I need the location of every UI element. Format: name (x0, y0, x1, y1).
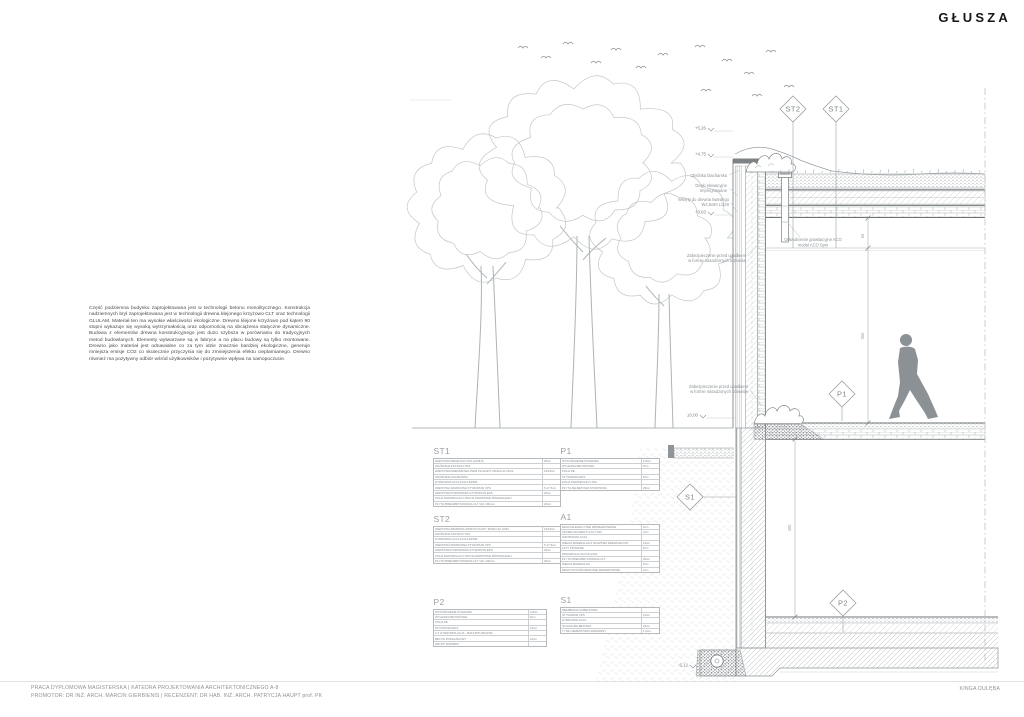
layer-value: 10cm (529, 626, 546, 630)
layer-name: WARSTWA SPADKOWA STYROPIAN XPS (434, 543, 543, 547)
layer-name: WARSTWA DRENAŻOWA ŻWIR PŁUKANY FRAKCJA 1… (434, 469, 543, 473)
spec-title-st2: ST2 (434, 514, 562, 524)
layer-name: WARSTWA POZIOMOWA STYROPIAN EPS (434, 548, 543, 552)
layer-name: STYROPIAN EPS (561, 475, 642, 479)
layer-name: FOLIA PE (434, 620, 529, 624)
layer-name: MEMBRANA KUBEŁKOWA (561, 608, 642, 612)
marker-st1-label: ST1 (829, 105, 844, 114)
layer-value: 2cm (642, 568, 659, 572)
layer-name: WŁÓKNINA FILTRACYJNA (434, 532, 543, 536)
layer-name: WEŁNA MINERALNA Z RUSZTEM DREWNIANYM (561, 541, 642, 545)
spec-table-s1: S1 MEMBRANA KUBEŁKOWASTYRODUR XPS10cmHYD… (560, 595, 660, 634)
layer-name: WYLEWKA BETONOWA (561, 464, 642, 468)
note-shrubs1-2: w formie nasadzonych krzewów (688, 258, 746, 263)
layer-name: WŁÓKNINA OCHRONNA (434, 475, 543, 479)
description-paragraph: Część podziemna budynku zaprojektowana j… (89, 306, 310, 363)
layer-name: FOLIA PE (561, 469, 642, 473)
note-drain-2: model ACO Spin (798, 243, 829, 248)
spec-title-p1: P1 (561, 446, 661, 456)
layer-name: WARSTWA POZIOMOWA STYROPIAN EPS (434, 491, 543, 495)
project-logo: GŁUSZA (938, 10, 1011, 25)
marker-st2-label: ST2 (786, 105, 801, 114)
birds-icons (518, 42, 794, 96)
spec-rows-a1: DESKI ELEWACYJNE IMPREGNOWANE2cmSZCZELIN… (560, 524, 660, 574)
layer-name: WARSTWA WEGETACYJNA HUMUS (434, 459, 543, 463)
layer-value: 5cm (642, 546, 659, 550)
note-flashing: Obróbka blacharska (690, 173, 727, 178)
layer-name: FOLIA PAROIZOLACYJNA (561, 480, 642, 484)
layer-name: PŁYTA ŻELBETOWA STROPOWA (561, 485, 642, 489)
spec-title-s1: S1 (561, 595, 661, 605)
layer-name: 2 X HYDROIZOLACJA - MATA BITUMICZNA (434, 631, 529, 635)
layer-value: 16cm (642, 541, 659, 545)
layer-name: TYNK CEMENTOWO-WAPIENNY (561, 629, 642, 633)
layer-name: WYKOŃCZENIE POSADZKI (434, 610, 529, 614)
spec-rows-s1: MEMBRANA KUBEŁKOWASTYRODUR XPS10cmHYDROI… (560, 607, 660, 635)
layer-name: DESKI ELEWACYJNE IMPREGNOWANE (561, 525, 642, 529)
layer-name: HYDROIZOLACJA FOLIA EPDM (434, 537, 543, 541)
layer-name: FOLIA PAROIZOLACYJNA NA WARSTWIE RÓWNAJĄ… (434, 553, 543, 557)
spec-table-st1: ST1 WARSTWA WEGETACYJNA HUMUS20cmWŁÓKNIN… (433, 446, 561, 507)
level-parapet: +4,75 (695, 152, 707, 157)
note-shrubs2-2: w formie nasadzonych krzewów (690, 389, 748, 394)
person-silhouette (889, 334, 938, 419)
layer-name: BETON PODKŁADOWY (434, 636, 529, 640)
layer-value: 1,5cm (642, 629, 659, 633)
table-row: GRUNT RODZIMY (434, 642, 546, 646)
spec-table-a1: A1 DESKI ELEWACYJNE IMPREGNOWANE2cmSZCZE… (560, 512, 660, 573)
dim-roof-gap: 60 (860, 233, 865, 238)
layer-name: DESKI WYKOŃCZENIOWE WEWNĘTRZNE (561, 568, 642, 572)
layer-value: 10/15cm (543, 527, 560, 531)
layer-name: PAROIZOLACJA FOLIA PE (561, 551, 642, 555)
spec-title-st1: ST1 (434, 446, 562, 456)
layer-name: HYDROIZOLACJA FOLIA EPDM (434, 480, 543, 484)
dim-storey: 350 (860, 332, 865, 340)
layer-value: 20cm (543, 459, 560, 463)
spec-table-st2: ST2 WARSTWA ŻWIROWA ŻWIR PŁUKANY FRAKCJA… (433, 514, 561, 564)
layer-value: 10cm (642, 613, 659, 617)
spec-table-p1: P1 WYKOŃCZENIE POSADZKI2,5cmWYLEWKA BETO… (560, 446, 660, 491)
layer-value: 5-17,5cm (543, 486, 560, 490)
spec-title-p2: P2 (434, 597, 548, 607)
layer-name: WIATROIZOLACJA (561, 535, 642, 539)
dim-basement: 400 (787, 524, 792, 532)
layer-value: 5cm (642, 562, 659, 566)
layer-value: 20cm (543, 559, 560, 563)
layer-name: ŚCIANA ŻELBETOWA (561, 624, 642, 628)
layer-value: 10cm (529, 637, 546, 641)
author-name: KINGA DULĘBA (960, 686, 1000, 692)
layer-name: PŁYTA PREFABRYKOWANA CLT GR. 200mm (434, 502, 543, 506)
layer-name: PŁYTA PREFABRYKOWANA CLT GR. 200mm (434, 559, 543, 563)
layer-value: 5cm (642, 475, 659, 479)
marker-p2-label: P2 (838, 599, 848, 608)
layer-value: 25cm (642, 624, 659, 628)
footer-credits: PRACA DYPLOMOWA MAGISTERSKA | KATEDRA PR… (31, 685, 322, 700)
marker-p2: P2 (830, 590, 856, 616)
layer-name: WYKOŃCZENIE POSADZKI (561, 459, 642, 463)
table-row: PŁYTA PREFABRYKOWANA CLT GR. 200mm20cm (434, 502, 560, 506)
table-row: DESKI WYKOŃCZENIOWE WEWNĘTRZNE2cm (561, 568, 659, 572)
layer-value: 20cm (543, 491, 560, 495)
layer-name: WEŁNA MINERALNA (561, 562, 642, 566)
table-row: TYNK CEMENTOWO-WAPIENNY1,5cm (561, 629, 659, 633)
layer-name: WŁÓKNINA FILTRACYJNA (434, 464, 543, 468)
level-ground: ±0,00 (687, 413, 699, 418)
marker-p1-label: P1 (837, 390, 847, 399)
layer-value: 5cm (529, 615, 546, 619)
spec-rows-st2: WARSTWA ŻWIROWA ŻWIR PŁUKANY FRAKCJA 16/… (433, 526, 561, 565)
spec-rows-p2: WYKOŃCZENIE POSADZKI2,5cmWYLEWKA BETONOW… (433, 609, 547, 648)
marker-st1: ST1 (823, 96, 849, 122)
layer-name: WARSTWA ŻWIROWA ŻWIR PŁUKANY FRAKCJA 16/… (434, 527, 543, 531)
marker-p1: P1 (829, 381, 855, 407)
trees-illustration (407, 76, 737, 428)
layer-name: ŁATY PIONOWE (561, 546, 642, 550)
marker-s1-label: S1 (685, 493, 695, 502)
layer-name: PŁYTA PREFABRYKOWANA CLT (561, 557, 642, 561)
layer-value: 2,5cm (642, 459, 659, 463)
footer-line-1: PRACA DYPLOMOWA MAGISTERSKA | KATEDRA PR… (31, 685, 322, 693)
layer-value: 4cm (642, 530, 659, 534)
presentation-board: 60 350 400 +5,26 +4,75 +3,63 ±0,00 -5,12… (0, 0, 1024, 717)
layer-name: STYROPIAN EPS (434, 626, 529, 630)
layer-value: 2cm (642, 525, 659, 529)
marker-st2: ST2 (780, 96, 806, 122)
footer-line-2: PROMOTOR: DR INŻ. ARCH. MARCIN GIERBIENI… (31, 693, 322, 701)
layer-name: GRUNT RODZIMY (434, 642, 529, 646)
layer-name: WYLEWKA BETONOWA (434, 615, 529, 619)
layer-value: 20cm (543, 548, 560, 552)
note-screws-2: W4,5x60 L/220 (701, 202, 729, 207)
layer-name: SZCZELINA WENTYLACYJNA (561, 530, 642, 534)
footer-divider (0, 681, 1024, 682)
layer-value: 10/15cm (543, 469, 560, 473)
level-roof: +3,63 (695, 210, 707, 215)
layer-name: STYRODUR XPS (561, 613, 642, 617)
layer-value: 20cm (642, 557, 659, 561)
layer-value: 5-17,5cm (543, 543, 560, 547)
level-top: +5,26 (695, 126, 707, 131)
spec-title-a1: A1 (561, 512, 661, 522)
spec-rows-st1: WARSTWA WEGETACYJNA HUMUS20cmWŁÓKNINA FI… (433, 458, 561, 508)
layer-value: 5cm (642, 464, 659, 468)
layer-name: WARSTWA SPADKOWA STYROPIAN XPS (434, 485, 543, 489)
spec-table-p2: P2 WYKOŃCZENIE POSADZKI2,5cmWYLEWKA BETO… (433, 597, 547, 647)
table-row: PŁYTA ŻELBETOWA STROPOWA25cm (561, 485, 659, 489)
layer-name: FOLIA PAROIZOLACYJNA NA WARSTWIE RÓWNAJĄ… (434, 496, 543, 500)
layer-name: HYDROIZOLACJA (561, 618, 642, 622)
spec-rows-p1: WYKOŃCZENIE POSADZKI2,5cmWYLEWKA BETONOW… (560, 458, 660, 491)
layer-value: 20cm (543, 502, 560, 506)
table-row: PŁYTA PREFABRYKOWANA CLT GR. 200mm20cm (434, 559, 560, 563)
building-section (696, 88, 1002, 676)
layer-value: 2,5cm (529, 610, 546, 614)
level-foundation: -5,12 (678, 663, 689, 668)
layer-value: 25cm (642, 486, 659, 490)
note-boards-2: impregnowane (700, 188, 728, 193)
